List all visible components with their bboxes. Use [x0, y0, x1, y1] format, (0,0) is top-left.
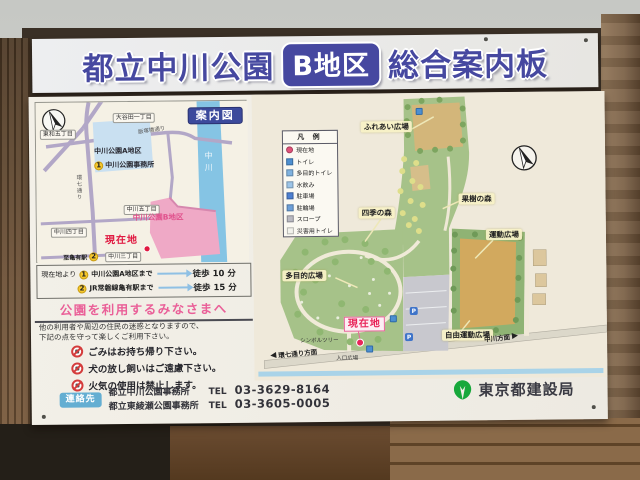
- route-destination: 中川公園A地区まで: [91, 269, 153, 280]
- park-map-panel: 凡 例 現在地 トイレ 多目的トイレ 水飲み 駐車場 駐輪場 スロープ 災害用ト…: [251, 91, 607, 381]
- legend-item: 現在地: [283, 144, 337, 156]
- no-litter-icon: [71, 345, 83, 357]
- sign-boards: 都立中川公園B地区総合案内板: [0, 0, 640, 480]
- area-b-label: 中川公園B地区: [133, 211, 184, 223]
- guide-map-badge: 案内図: [188, 107, 243, 125]
- contact-lines: 都立中川公園事務所 TEL 03-3629-8164 都立東綾瀬公園事務所 TE…: [109, 383, 331, 413]
- numbered-circle-1: 1: [94, 161, 103, 170]
- sports-field-shape: [459, 238, 517, 329]
- screw-icon: [42, 415, 46, 419]
- bicycle-parking-icon: [287, 204, 294, 211]
- vicinity-map-drawing: [36, 101, 250, 264]
- toilet-icon: [390, 315, 397, 322]
- route-walk-time: 徒歩 10 分: [193, 267, 236, 279]
- rule-item: 犬の放し飼いはご遠慮下さい。: [71, 360, 221, 376]
- legend-title: 凡 例: [283, 131, 337, 145]
- vicinity-map-panel: 案内図 大谷田一丁目 東和五丁目 飯塚橋通り 環七通り 中川 中川公園A地区 1…: [35, 100, 249, 263]
- board-type-title: 総合案内板: [388, 46, 548, 84]
- slope-icon: [287, 216, 294, 223]
- screw-icon: [592, 405, 596, 409]
- main-information-board: 案内図 大谷田一丁目 東和五丁目 飯塚橋通り 環七通り 中川 中川公園A地区 1…: [28, 91, 607, 425]
- toilet-icon: [286, 158, 293, 165]
- ginkgo-leaf-icon: [451, 379, 473, 400]
- toilet-icon: [366, 345, 373, 352]
- route-destination: JR常磐線亀有駅まで: [89, 283, 153, 294]
- screw-icon: [484, 37, 488, 41]
- area-label-kaju-no-mori: 果樹の森: [459, 193, 495, 204]
- current-location-dot: [144, 246, 150, 252]
- toilet-icon: [416, 108, 423, 115]
- current-location-dot-icon: [286, 147, 293, 154]
- agency-name: 東京都建設局: [478, 378, 574, 400]
- current-location-dot: [357, 339, 364, 346]
- parking-icon: [410, 307, 418, 315]
- legend-item: 駐輪場: [284, 201, 338, 213]
- legend-item: トイレ: [283, 155, 337, 167]
- park-office-label: 1 中川公園事務所: [94, 160, 154, 171]
- area-label-tamokuteki-hiroba: 多目的広場: [282, 270, 326, 281]
- screw-icon: [584, 38, 588, 42]
- legend-box: 凡 例 現在地 トイレ 多目的トイレ 水飲み 駐車場 駐輪場 スロープ 災害用ト…: [282, 130, 339, 238]
- numbered-circle-2: 2: [77, 284, 86, 293]
- street-label-nakagawa3: 中川三丁目: [105, 252, 141, 262]
- legend-item: 水飲み: [283, 178, 337, 190]
- accessible-toilet-icon: [286, 170, 293, 177]
- route-info-box: 現在地より 1 中川公園A地区まで 徒歩 10 分 2 JR常磐線亀有駅まで 徒…: [36, 263, 251, 299]
- contact-badge: 連絡先: [60, 392, 102, 407]
- legend-item: 多目的トイレ: [283, 167, 337, 179]
- notice-title: 公園を利用するみなさまへ: [35, 298, 253, 323]
- rule-item: ごみはお持ち帰り下さい。: [71, 343, 221, 359]
- construction-bureau-logo: 東京都建設局: [451, 378, 574, 400]
- compass-icon: [511, 145, 537, 175]
- numbered-circle-2: 2: [89, 252, 98, 261]
- legend-item: 駐車場: [283, 190, 337, 202]
- contact-section: 連絡先 都立中川公園事務所 TEL 03-3629-8164 都立東綾瀬公園事務…: [60, 383, 331, 414]
- area-label-fureai-hiroba: ふれあい広場: [361, 121, 412, 133]
- route-arrow-icon: [158, 272, 188, 274]
- drinking-fountain-icon: [286, 181, 293, 188]
- current-location-marker: 現在地: [344, 316, 385, 331]
- arrow-right-icon: [512, 332, 519, 339]
- disaster-toilet-icon: [287, 227, 294, 234]
- park-name-title: 都立中川公園: [82, 49, 274, 87]
- numbered-circle-1: 1: [79, 270, 88, 279]
- title-board: 都立中川公園B地区総合案内板: [32, 33, 599, 93]
- symbol-tree-label: シンボルツリー: [300, 336, 339, 344]
- river-label: 中川: [203, 151, 214, 175]
- photo-of-park-information-sign: 都立中川公園B地区総合案内板: [0, 0, 640, 480]
- street-label-towa: 東和五丁目: [40, 130, 76, 140]
- area-label-shiki-no-mori: 四季の森: [359, 207, 395, 218]
- street-label-otaniata: 大谷田一丁目: [113, 113, 155, 123]
- parking-icon: [287, 193, 294, 200]
- route-row-2: 2 JR常磐線亀有駅まで 徒歩 15 分: [41, 280, 246, 296]
- area-label-undo-hiroba: 運動広場: [486, 229, 522, 240]
- to-kameari-station-label: 至亀有駅 2: [63, 252, 98, 261]
- district-badge: B地区: [283, 43, 379, 86]
- no-dog-offleash-icon: [71, 362, 83, 374]
- road-label-kannana: 環七通り: [74, 174, 82, 200]
- street-label-nakagawa4: 中川四丁目: [51, 227, 87, 237]
- route-walk-time: 徒歩 15 分: [193, 281, 236, 293]
- route-from: 現在地より: [41, 270, 76, 280]
- route-arrow-icon: [158, 286, 188, 288]
- arrow-left-icon: [270, 352, 277, 359]
- parking-icon: [405, 333, 413, 341]
- area-a-label: 中川公園A地区: [94, 146, 142, 156]
- notice-intro: 他の利用者や周辺の住民の迷惑となりますので、 下記の点を守って楽しくご利用下さい…: [39, 321, 204, 343]
- entrance-plaza-label: 入口広場: [336, 354, 358, 362]
- board-title: 都立中川公園B地区総合案内板: [82, 38, 548, 88]
- current-location-label: 現在地: [105, 231, 138, 246]
- contact-office-row: 都立東綾瀬公園事務所 TEL 03-3605-0005: [109, 397, 331, 413]
- legend-item: スロープ: [284, 213, 338, 225]
- legend-item: 災害用トイレ: [284, 224, 338, 236]
